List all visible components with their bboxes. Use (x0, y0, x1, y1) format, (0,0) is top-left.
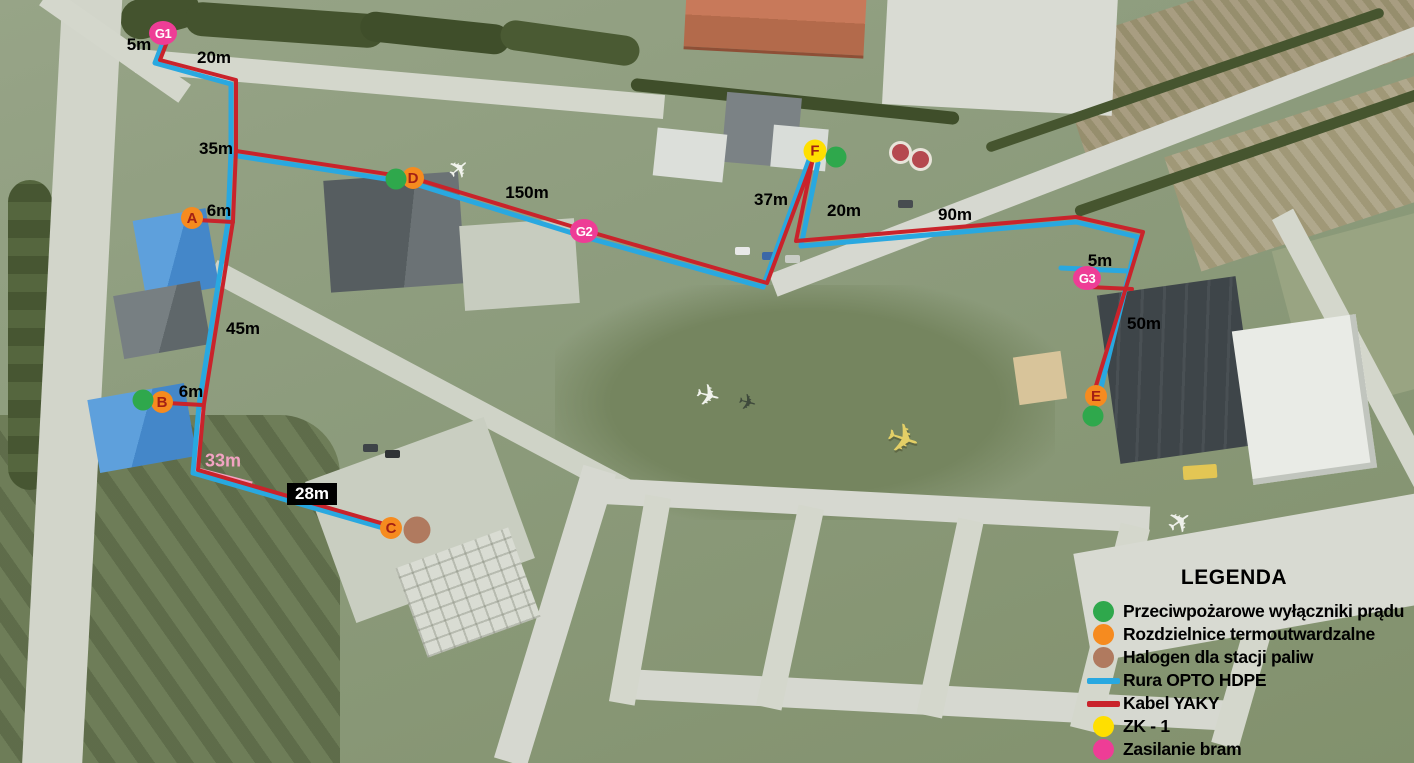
halogen-icon (1093, 647, 1114, 668)
legend-item: Kabel YAKY (1093, 692, 1414, 715)
opto-pipe-line (155, 42, 390, 530)
distance-label: 6m (179, 382, 204, 402)
legend-label: Rura OPTO HDPE (1123, 670, 1266, 691)
legend-label: Kabel YAKY (1123, 693, 1219, 714)
distance-label: 35m (199, 139, 233, 159)
zk1-icon (1093, 716, 1114, 737)
fire-switch-icon (386, 169, 407, 190)
distance-label: 50m (1127, 314, 1161, 334)
aerial-map: ✈ ✈ ✈ ✈ ✈ LEGENDA Przeciwpożarowe wyłącz… (0, 0, 1414, 763)
marker-node-E: E (1085, 385, 1107, 407)
legend-item: Przeciwpożarowe wyłączniki prądu (1093, 600, 1414, 623)
distance-label: 20m (827, 201, 861, 221)
marker-gate-G1: G1 (149, 21, 177, 45)
opto-pipe-icon (1087, 678, 1120, 684)
fire-switch-icon (133, 390, 154, 411)
gate-power-icon (1093, 739, 1114, 760)
marker-node-A: A (181, 207, 203, 229)
marker-gate-G2: G2 (570, 219, 598, 243)
legend-item: Rura OPTO HDPE (1093, 669, 1414, 692)
fire-switch-icon (1083, 406, 1104, 427)
distance-label: 150m (505, 183, 548, 203)
legend: LEGENDA Przeciwpożarowe wyłączniki prądu… (1093, 566, 1414, 761)
legend-item: ZK - 1 (1093, 715, 1414, 738)
distance-label: 33m (205, 451, 241, 472)
legend-label: Halogen dla stacji paliw (1123, 647, 1313, 668)
fire-switch-icon (826, 147, 847, 168)
legend-item: Rozdzielnice termoutwardzalne (1093, 623, 1414, 646)
fire-switch-icon (1093, 601, 1114, 622)
legend-item: Halogen dla stacji paliw (1093, 646, 1414, 669)
marker-node-C: C (380, 517, 402, 539)
distance-label: 45m (226, 319, 260, 339)
legend-label: ZK - 1 (1123, 716, 1170, 737)
opto-pipe-line (231, 155, 809, 287)
distance-label: 6m (207, 201, 232, 221)
legend-items: Przeciwpożarowe wyłączniki prąduRozdziel… (1093, 600, 1414, 761)
halogen-icon (404, 517, 431, 544)
distribution-box-icon (1093, 624, 1114, 645)
distance-label: 37m (754, 190, 788, 210)
distance-label: 90m (938, 205, 972, 225)
yaky-cable-icon (1087, 701, 1120, 707)
legend-label: Zasilanie bram (1123, 739, 1241, 760)
legend-item: Zasilanie bram (1093, 738, 1414, 761)
legend-label: Przeciwpożarowe wyłączniki prądu (1123, 601, 1404, 622)
marker-zk-F: F (804, 140, 827, 163)
distance-label: 5m (127, 35, 152, 55)
distance-label: 28m (287, 483, 337, 505)
distance-label: 5m (1088, 251, 1113, 271)
legend-label: Rozdzielnice termoutwardzalne (1123, 624, 1375, 645)
legend-title: LEGENDA (1093, 566, 1375, 590)
distance-label: 20m (197, 48, 231, 68)
marker-node-B: B (151, 391, 173, 413)
